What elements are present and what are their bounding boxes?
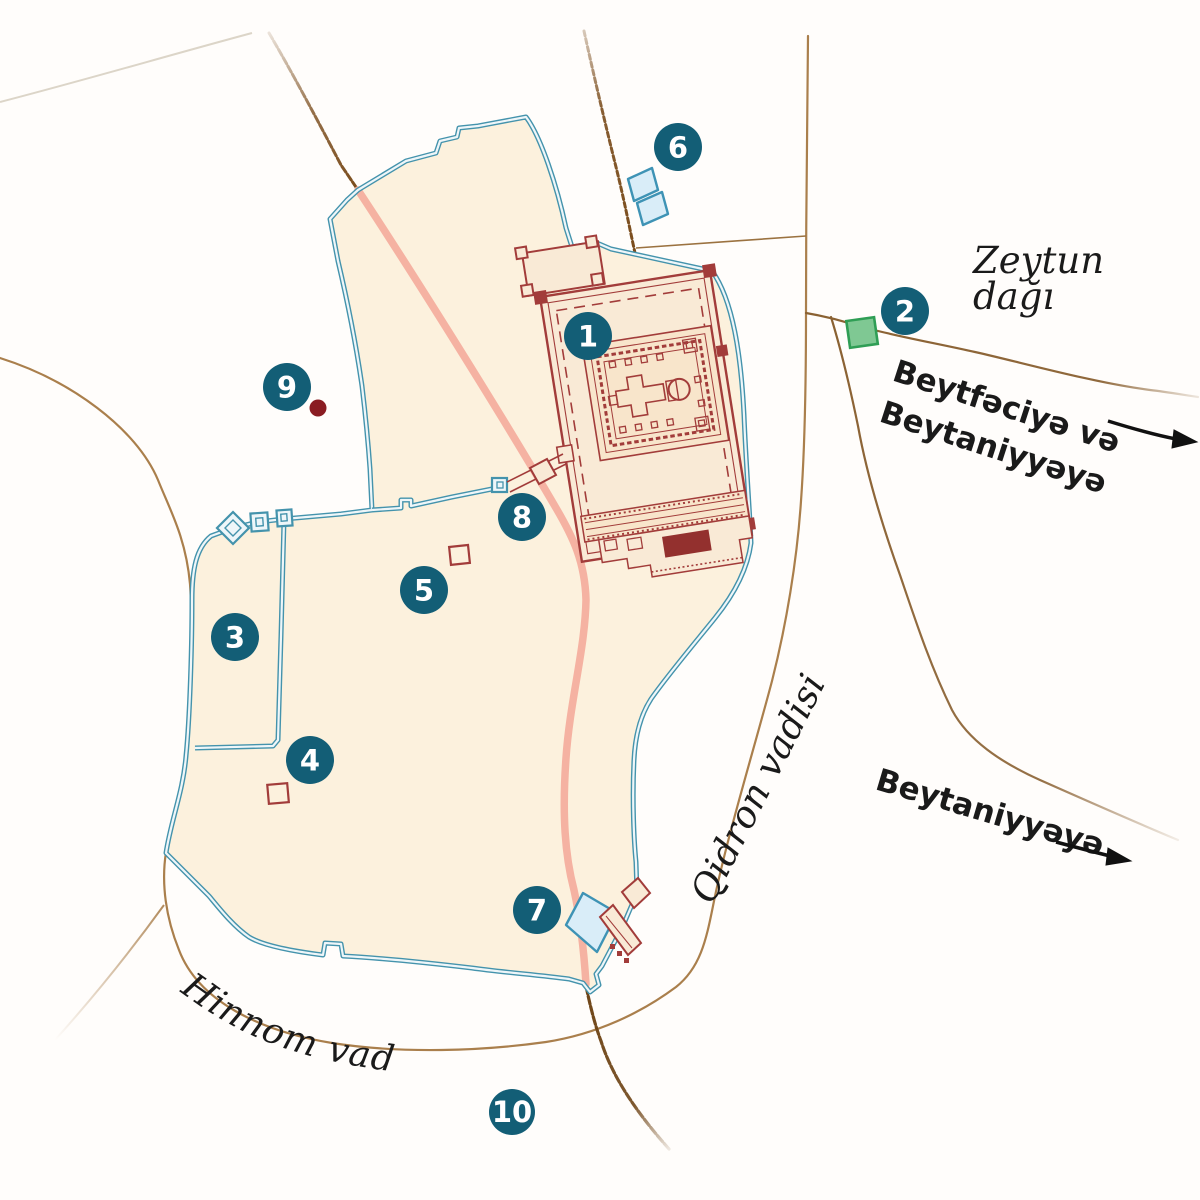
svg-text:3: 3 bbox=[225, 621, 245, 655]
bethphage-arrow-head bbox=[1172, 430, 1197, 448]
svg-text:5: 5 bbox=[414, 574, 434, 608]
valley-branch-southwest bbox=[55, 905, 164, 1040]
faint-topo-line bbox=[0, 33, 252, 102]
svg-text:2: 2 bbox=[895, 295, 915, 329]
road-northwest-gate bbox=[269, 33, 358, 190]
marker-3: 3 bbox=[211, 613, 259, 661]
square-gate-tower-2 bbox=[276, 509, 292, 526]
to-bethany-label: Beytaniyyəyə bbox=[872, 762, 1108, 864]
svg-text:7: 7 bbox=[527, 894, 547, 928]
svg-text:4: 4 bbox=[300, 744, 320, 778]
green-landmark-square bbox=[846, 317, 877, 348]
svg-text:10: 10 bbox=[492, 1095, 532, 1129]
west-gate-tower bbox=[557, 445, 574, 463]
marker-5: 5 bbox=[400, 566, 448, 614]
marker-9: 9 bbox=[263, 363, 311, 411]
marker-8: 8 bbox=[498, 493, 546, 541]
north-connector-path bbox=[636, 236, 806, 248]
marker-1: 1 bbox=[564, 312, 612, 360]
pools-of-bethesda bbox=[628, 168, 668, 225]
marker-4: 4 bbox=[286, 736, 334, 784]
marker-10: 10 bbox=[489, 1089, 535, 1135]
mount-of-olives-label-line2: dağı bbox=[973, 275, 1054, 318]
bethany-arrow-head bbox=[1106, 848, 1131, 865]
svg-text:9: 9 bbox=[277, 371, 297, 405]
kidron-valley-label: Qidron vadisi bbox=[682, 667, 834, 910]
svg-text:6: 6 bbox=[668, 131, 688, 165]
road-from-siloam-gate bbox=[586, 986, 669, 1149]
svg-text:1: 1 bbox=[578, 320, 598, 354]
jerusalem-map: Zeytun dağı Beytfəciyə və Beytaniyyəyə B… bbox=[0, 0, 1200, 1200]
square-gate-tower-1 bbox=[250, 512, 268, 531]
landmark-square-5 bbox=[449, 545, 470, 565]
red-dot-landmark bbox=[310, 400, 327, 417]
marker-7: 7 bbox=[513, 886, 561, 934]
marker-6: 6 bbox=[654, 123, 702, 171]
marker-2: 2 bbox=[881, 287, 929, 335]
landmark-square-4 bbox=[267, 783, 289, 804]
svg-text:8: 8 bbox=[512, 501, 532, 535]
causeway-gate bbox=[492, 478, 507, 492]
road-north bbox=[584, 31, 635, 253]
